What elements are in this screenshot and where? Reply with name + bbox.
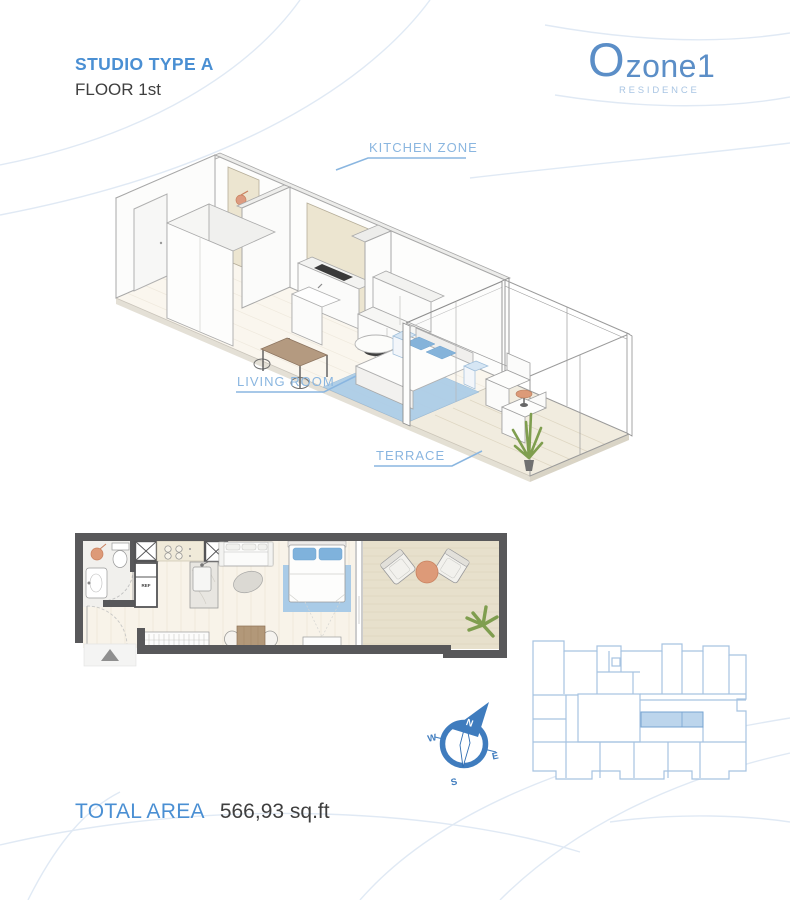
page-subtitle: FLOOR 1st <box>75 80 161 100</box>
plan-glass-wall <box>355 541 363 645</box>
living-room-label: LIVING ROOM <box>237 374 335 389</box>
compass-s-label: S <box>450 776 458 788</box>
key-plan-highlighted-unit <box>641 712 703 727</box>
brand-logo: Ozone1 RESIDENCE <box>588 36 738 96</box>
plan-island-sink <box>193 567 211 591</box>
total-area-row: TOTAL AREA 566,93 sq.ft <box>75 800 330 824</box>
page-title: STUDIO TYPE A <box>75 54 214 75</box>
plan-shower-head <box>91 548 103 560</box>
plan-toilet <box>113 551 127 568</box>
total-area-label: TOTAL AREA <box>75 800 205 824</box>
logo-wordmark: zone1 <box>626 50 716 82</box>
iso-bathroom-wall <box>237 185 290 308</box>
plan-pillow <box>293 548 316 560</box>
plan-sofa <box>219 542 273 566</box>
plan-terrace-floor <box>363 541 499 649</box>
compass: N W E S <box>427 702 500 789</box>
page: REF <box>0 0 790 900</box>
key-plan <box>533 641 746 779</box>
floor-plan: REF <box>75 533 507 666</box>
compass-w-label: W <box>427 732 438 745</box>
plan-bed <box>283 541 351 612</box>
kitchen-zone-label: KITCHEN ZONE <box>369 140 478 155</box>
plan-pillow <box>319 548 342 560</box>
logo-letter-o: O <box>588 36 625 83</box>
plan-terrace-table <box>416 561 438 583</box>
terrace-label: TERRACE <box>376 448 445 463</box>
kitchen-label-leader <box>336 158 466 170</box>
iso-view <box>116 153 632 482</box>
total-area-value: 566,93 sq.ft <box>220 800 330 824</box>
plan-ref-label: REF <box>142 583 151 588</box>
logo-tagline: RESIDENCE <box>619 86 738 96</box>
compass-e-label: E <box>491 750 499 762</box>
